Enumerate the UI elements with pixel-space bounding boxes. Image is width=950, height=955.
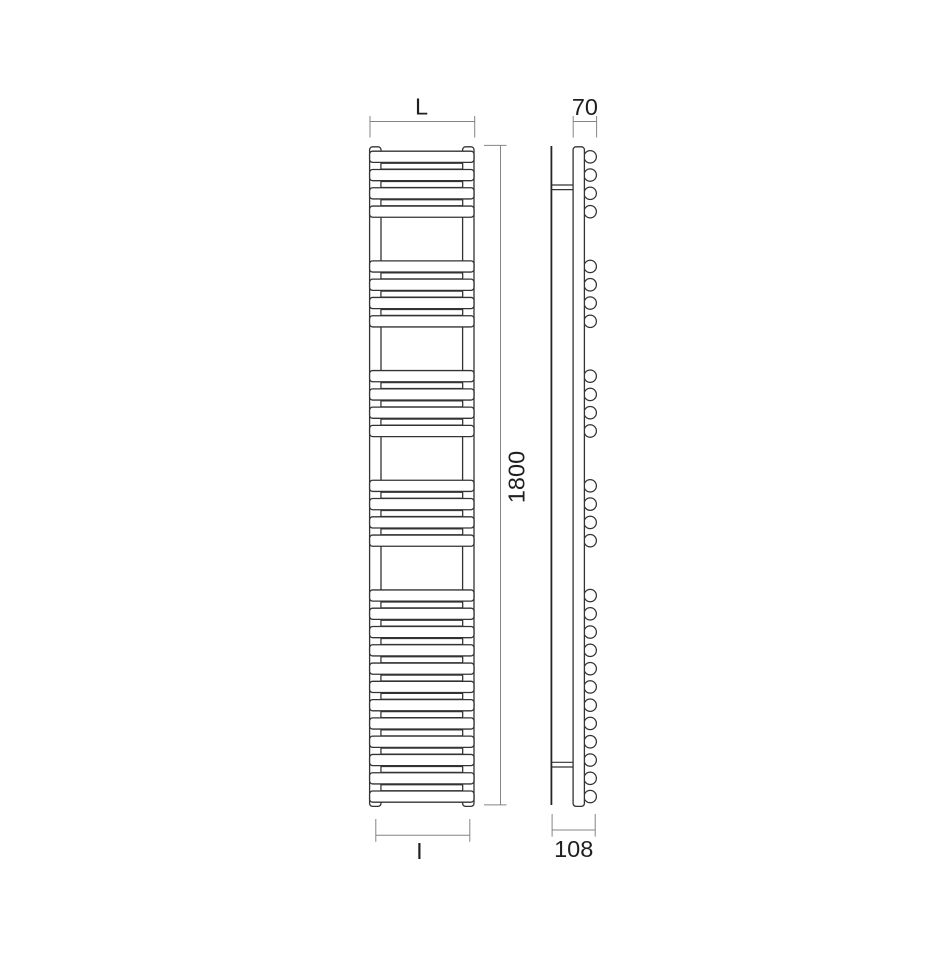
svg-text:I: I <box>416 838 423 864</box>
svg-text:1800: 1800 <box>504 451 530 503</box>
svg-text:108: 108 <box>554 836 593 862</box>
svg-text:70: 70 <box>572 94 598 120</box>
svg-text:L: L <box>415 94 428 120</box>
